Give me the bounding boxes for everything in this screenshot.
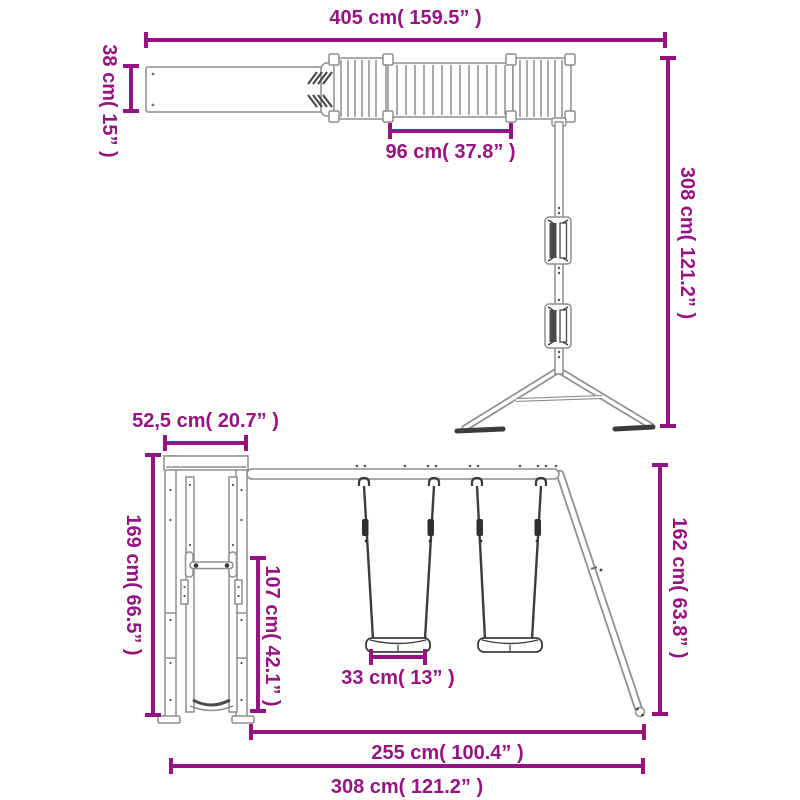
dim-cap bbox=[642, 724, 646, 740]
slide-tower-front-view bbox=[158, 456, 254, 723]
dim-label-total-length: 405 cm( 159.5” ) bbox=[329, 7, 481, 30]
dim-swing-span: 255 cm( 100.4” ) bbox=[249, 724, 646, 740]
dim-label-platform-depth: 38 cm( 15” ) bbox=[96, 36, 122, 166]
dim-line bbox=[388, 129, 513, 133]
dim-line bbox=[658, 463, 662, 716]
dim-cap bbox=[123, 109, 139, 113]
dim-label-slide-length: 107 cm( 42.1” ) bbox=[259, 531, 285, 741]
dim-line bbox=[369, 655, 427, 659]
swing-frame-top-view bbox=[457, 118, 653, 431]
platform-right-top-view bbox=[513, 58, 571, 119]
dim-cap bbox=[145, 713, 161, 717]
dim-platform-depth bbox=[123, 64, 139, 113]
dim-line bbox=[666, 56, 670, 428]
dim-cap bbox=[652, 712, 668, 716]
dim-line bbox=[169, 764, 645, 768]
product-dimension-diagram: 405 cm( 159.5” ) 38 cm( 15” ) 96 cm( 37.… bbox=[0, 0, 800, 800]
slide-top-view bbox=[146, 63, 335, 116]
swing-seat-2 bbox=[478, 638, 542, 652]
dim-total-width: 308 cm( 121.2” ) bbox=[169, 758, 645, 774]
dim-line bbox=[144, 38, 667, 42]
bridge-top-view bbox=[388, 63, 513, 117]
swing-hanger-bracket-lower bbox=[545, 304, 571, 348]
dim-bridge-length: 96 cm( 37.8” ) bbox=[388, 123, 513, 139]
dim-label-swing-frame-height: 162 cm( 63.8” ) bbox=[666, 483, 692, 693]
swing-2 bbox=[477, 486, 543, 652]
swing-1 bbox=[362, 486, 434, 652]
dim-label-bridge-length: 96 cm( 37.8” ) bbox=[385, 141, 515, 164]
dim-cap bbox=[244, 435, 248, 451]
top-view-artwork bbox=[146, 54, 653, 431]
swing-hanger-bracket-upper bbox=[545, 217, 571, 264]
dim-label-tower-width: 52,5 cm( 20.7” ) bbox=[132, 410, 279, 433]
dim-label-frame-depth: 308 cm( 121.2” ) bbox=[674, 133, 700, 353]
dim-line bbox=[249, 730, 646, 734]
dim-cap bbox=[660, 424, 676, 428]
dim-cap bbox=[423, 649, 427, 665]
dim-cap bbox=[663, 32, 667, 48]
dim-seat-width: 33 cm( 13” ) bbox=[369, 649, 427, 665]
dim-cap bbox=[509, 123, 513, 139]
dim-label-total-width: 308 cm( 121.2” ) bbox=[331, 776, 483, 799]
dim-tower-width: 52,5 cm( 20.7” ) bbox=[163, 435, 248, 451]
beam-bolts bbox=[356, 465, 558, 468]
dim-line bbox=[129, 64, 133, 113]
dim-line bbox=[163, 441, 248, 445]
dim-label-tower-height: 169 cm( 66.5” ) bbox=[120, 475, 146, 695]
slide-handle bbox=[186, 552, 237, 577]
dim-tower-height bbox=[145, 453, 161, 717]
dim-cap bbox=[641, 758, 645, 774]
dim-total-length: 405 cm( 159.5” ) bbox=[144, 32, 667, 48]
dim-label-seat-width: 33 cm( 13” ) bbox=[341, 667, 454, 690]
platform-left-top-view bbox=[334, 58, 386, 119]
dim-line bbox=[151, 453, 155, 717]
